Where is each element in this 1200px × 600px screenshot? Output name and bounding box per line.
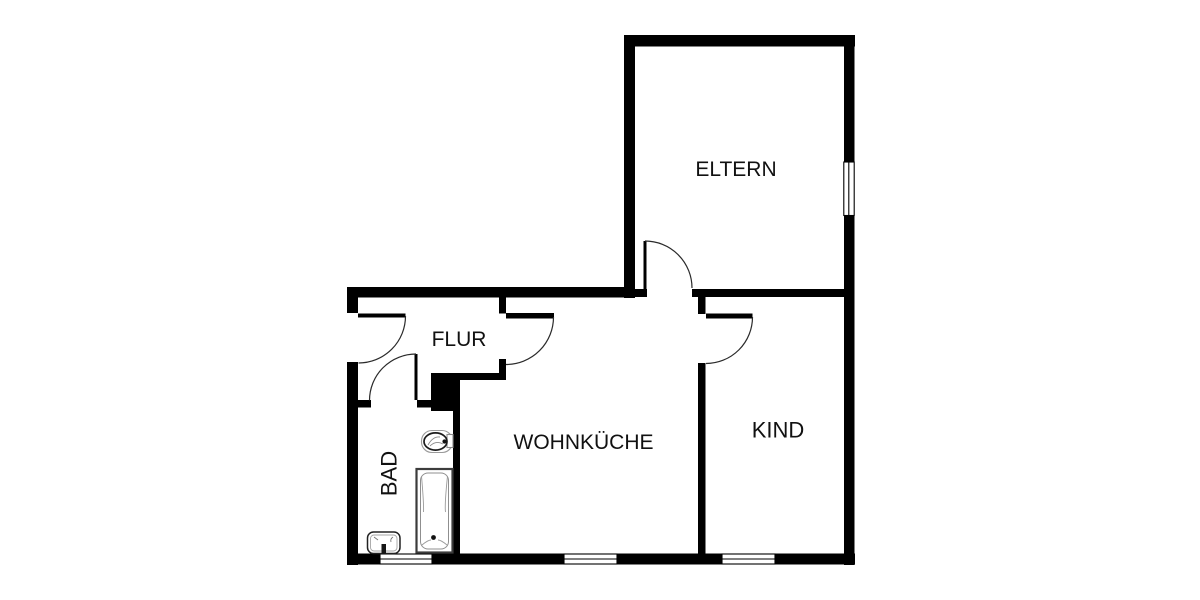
svg-text:ELTERN: ELTERN — [695, 158, 776, 181]
svg-text:KIND: KIND — [752, 418, 805, 443]
svg-text:FLUR: FLUR — [432, 328, 487, 351]
svg-text:WOHNKÜCHE: WOHNKÜCHE — [514, 431, 654, 454]
svg-text:BAD: BAD — [377, 451, 402, 496]
